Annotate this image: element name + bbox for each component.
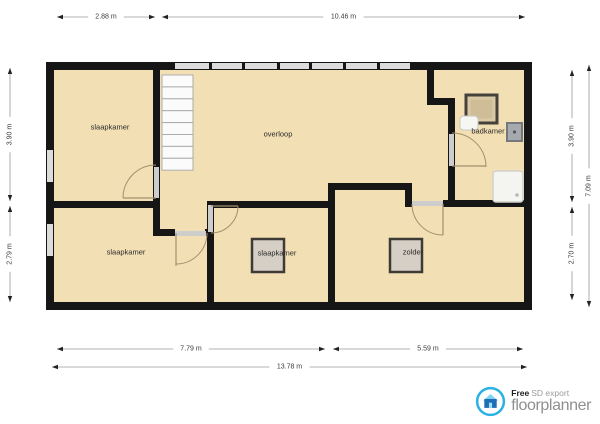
- room-label: zolder: [403, 248, 424, 257]
- dimension-arrow: [570, 70, 574, 76]
- stair-tread: [162, 123, 193, 135]
- window: [47, 224, 53, 256]
- window: [47, 150, 53, 182]
- floorplan-export-image: 2.88 m10.46 m7.79 m5.59 m13.78 m3.90 m2.…: [0, 0, 600, 424]
- free-sd-export-line: FreeSD export: [511, 389, 591, 398]
- dimension-arrow: [162, 15, 168, 19]
- wall: [328, 183, 412, 190]
- room-label: slaapkamer: [91, 123, 130, 132]
- wall: [46, 302, 532, 310]
- room-label: overloop: [264, 130, 293, 139]
- dimension-arrow: [587, 301, 591, 307]
- dimension-label: 13.78 m: [277, 364, 302, 371]
- sd-export-label: SD export: [531, 388, 569, 398]
- room-label: slaapkamer: [258, 249, 297, 258]
- stair-tread: [162, 135, 193, 147]
- wall: [158, 229, 175, 236]
- door-opening: [175, 231, 206, 236]
- dimension-arrow: [519, 15, 525, 19]
- logo-house-door: [489, 403, 492, 408]
- dimension-arrow: [52, 365, 58, 369]
- room-label: badkamer: [471, 127, 505, 136]
- stair-tread: [162, 111, 193, 123]
- dimension-arrow: [570, 294, 574, 300]
- dimension-label: 7.79 m: [180, 346, 202, 353]
- wall: [405, 183, 412, 207]
- dimension-arrow: [57, 347, 63, 351]
- window-divider: [209, 62, 212, 70]
- shower-tray: [493, 171, 523, 202]
- dimension-arrow: [333, 347, 339, 351]
- stair-tread: [162, 75, 193, 87]
- window-divider: [242, 62, 245, 70]
- dimension-arrow: [8, 68, 12, 74]
- sink-drain: [513, 130, 516, 133]
- free-label: Free: [511, 388, 529, 398]
- wall: [207, 201, 335, 208]
- stair-tread: [162, 87, 193, 99]
- dimension-arrow: [57, 15, 63, 19]
- room-label: slaapkamer: [107, 248, 146, 257]
- dimension-arrow: [8, 206, 12, 212]
- window-divider: [377, 62, 380, 70]
- floorplan-svg: 2.88 m10.46 m7.79 m5.59 m13.78 m3.90 m2.…: [0, 0, 600, 424]
- dimension-label: 2.79 m: [7, 243, 14, 265]
- door-opening: [449, 134, 454, 166]
- door-opening: [412, 201, 443, 206]
- wall: [328, 185, 335, 302]
- dimension-arrow: [8, 296, 12, 302]
- window-divider: [277, 62, 280, 70]
- wall: [46, 62, 54, 310]
- dimension-label: 10.46 m: [331, 14, 356, 21]
- dimension-arrow: [8, 195, 12, 201]
- floorplanner-logo-icon: [475, 386, 506, 417]
- dimension-arrow: [319, 347, 325, 351]
- floor-area: [46, 62, 532, 310]
- dimension-label: 2.70 m: [569, 243, 576, 265]
- wall: [50, 201, 160, 208]
- dimension-label: 2.88 m: [95, 14, 117, 21]
- dimension-arrow: [587, 65, 591, 71]
- wall: [524, 62, 532, 310]
- dimension-label: 5.59 m: [417, 346, 439, 353]
- window-divider: [343, 62, 346, 70]
- dimension-arrow: [570, 207, 574, 213]
- dimension-arrow: [521, 365, 527, 369]
- stair-tread: [162, 158, 193, 170]
- stair-tread: [162, 146, 193, 158]
- dimension-label: 7.09 m: [586, 175, 593, 197]
- dimension-label: 3.90 m: [7, 124, 14, 146]
- dimension-arrow: [149, 15, 155, 19]
- door-opening: [154, 167, 159, 198]
- floorplanner-watermark: FreeSD export floorplanner: [475, 386, 591, 417]
- stair-tread: [162, 99, 193, 111]
- dimension-arrow: [570, 196, 574, 202]
- dimension-arrow: [517, 347, 523, 351]
- tray-drain: [515, 193, 519, 197]
- dimension-label: 3.90 m: [569, 125, 576, 147]
- floorplanner-wordmark: floorplanner: [511, 398, 591, 414]
- door-opening: [208, 205, 213, 232]
- window-divider: [309, 62, 312, 70]
